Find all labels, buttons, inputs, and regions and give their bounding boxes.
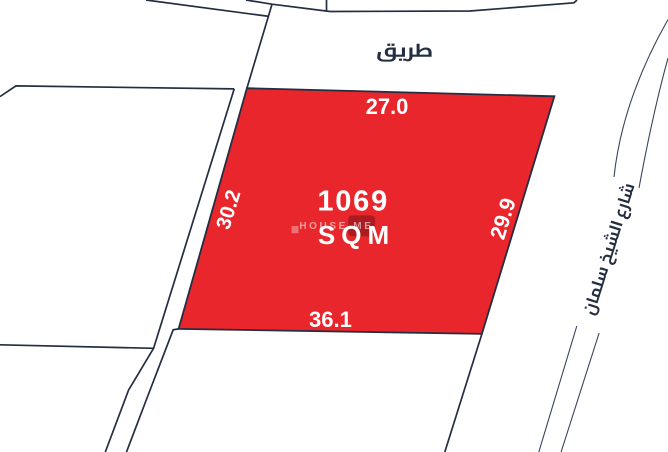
- svg-text:27.0: 27.0: [366, 94, 409, 119]
- svg-text:36.1: 36.1: [309, 307, 352, 332]
- svg-text:SQM: SQM: [318, 220, 395, 250]
- svg-text:1069: 1069: [317, 186, 389, 218]
